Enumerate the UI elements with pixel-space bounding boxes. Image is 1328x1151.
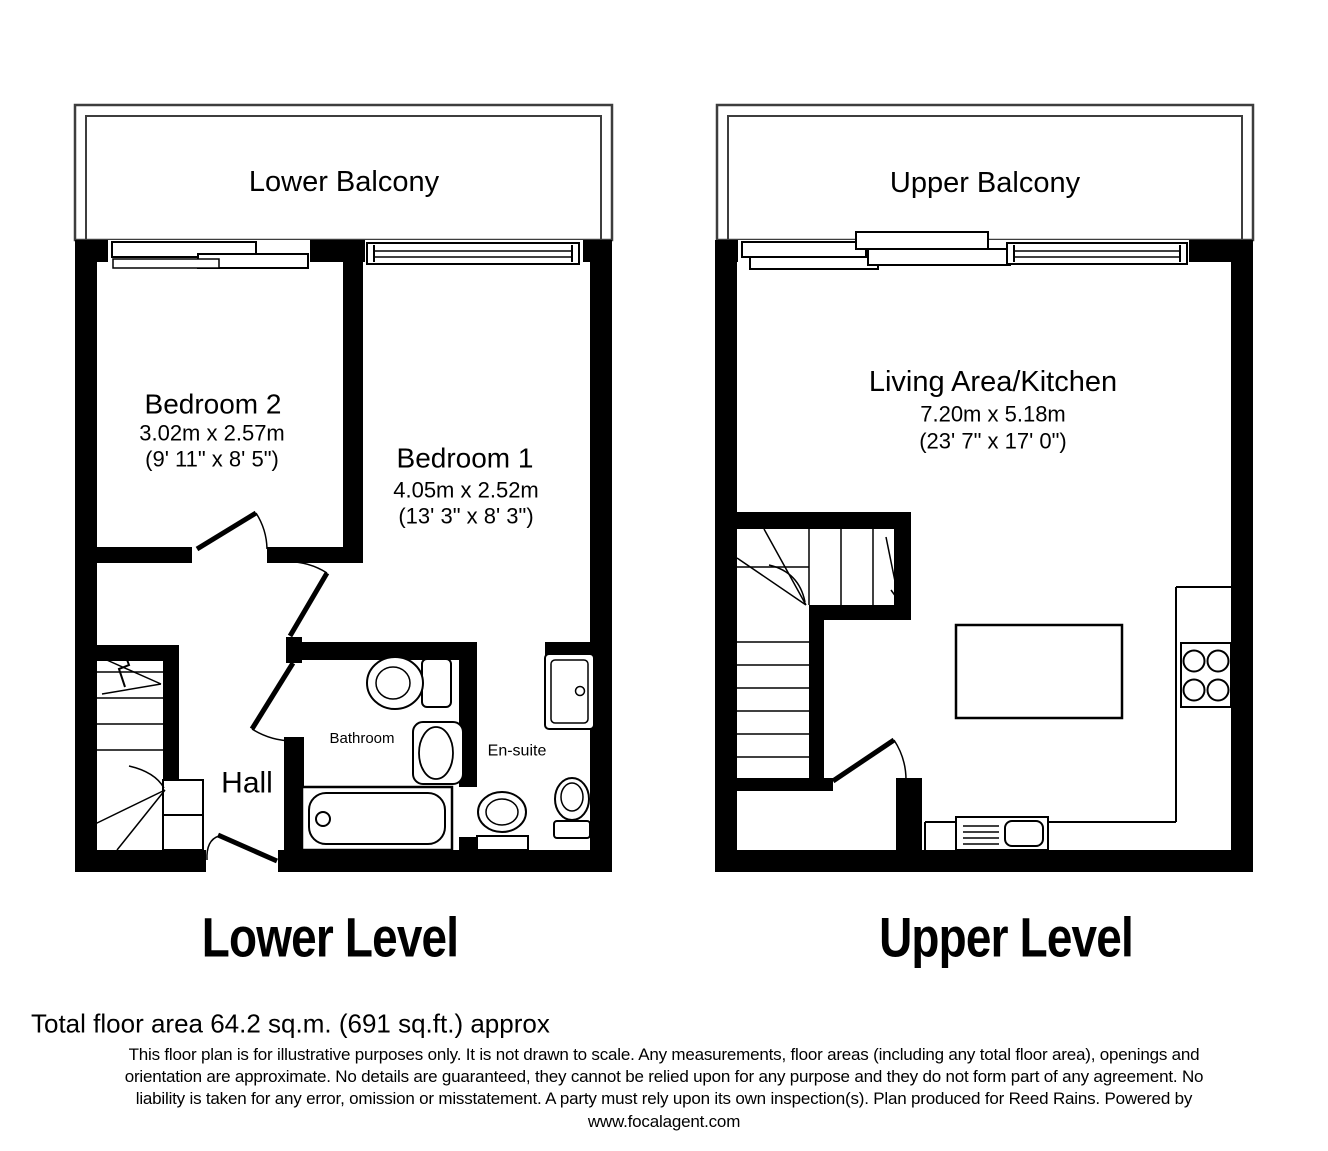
website-text: www.focalagent.com <box>588 1113 740 1131</box>
upper-walls <box>715 240 1253 872</box>
upper-level-title: Upper Level <box>879 909 1133 968</box>
upper-plan <box>715 105 1253 872</box>
island-table <box>956 625 1122 718</box>
ensuite-label: En-suite <box>488 744 547 761</box>
floorplan-page: Lower Balcony Bedroom 2 3.02m x 2.57m (9… <box>0 0 1328 1151</box>
bedroom2-dims-imperial: (9' 11" x 8' 5") <box>145 447 279 470</box>
floorplan-graphics <box>0 0 1328 1151</box>
upper-windows <box>742 232 1187 269</box>
bath-icon <box>302 787 452 850</box>
bedroom1-name: Bedroom 1 <box>397 443 534 472</box>
stairs-lower <box>95 649 203 850</box>
ensuite-toilet-icon <box>554 778 590 838</box>
bedroom1-dims-imperial: (13' 3" x 8' 3") <box>398 504 533 527</box>
ensuite-basin-icon <box>477 792 528 850</box>
basin-icon <box>413 722 463 784</box>
stair-door <box>833 740 906 781</box>
hall-label: Hall <box>221 767 273 799</box>
lower-level-title: Lower Level <box>202 909 458 968</box>
bedroom2-name: Bedroom 2 <box>145 389 282 418</box>
bathroom-fixtures <box>302 657 463 850</box>
toilet-icon <box>367 657 451 709</box>
disclaimer-line-1: This floor plan is for illustrative purp… <box>129 1046 1200 1064</box>
bedroom2-dims-metric: 3.02m x 2.57m <box>139 421 285 444</box>
living-area-dims-metric: 7.20m x 5.18m <box>920 402 1066 425</box>
bedroom1-window-icon <box>367 243 579 264</box>
bedroom1-door <box>281 562 327 636</box>
hob-icon <box>1181 643 1231 707</box>
shower-icon <box>545 654 594 729</box>
bedroom2-door <box>197 513 267 549</box>
bedroom1-dims-metric: 4.05m x 2.52m <box>393 478 539 501</box>
total-floor-area: Total floor area 64.2 sq.m. (691 sq.ft.)… <box>31 1009 550 1040</box>
kitchen-fixtures <box>925 587 1231 850</box>
disclaimer-line-2: orientation are approximate. No details … <box>125 1068 1204 1086</box>
bathroom-door <box>252 663 293 741</box>
upper-balcony-label: Upper Balcony <box>890 168 1080 198</box>
disclaimer-line-3: liability is taken for any error, omissi… <box>136 1090 1192 1108</box>
bathroom-label: Bathroom <box>329 731 394 747</box>
living-area-name: Living Area/Kitchen <box>869 367 1117 397</box>
living-window-icon <box>1007 243 1187 264</box>
balcony-sliding-door-icon <box>856 232 1010 265</box>
living-area-dims-imperial: (23' 7" x 17' 0") <box>919 429 1067 452</box>
lower-balcony-label: Lower Balcony <box>249 167 439 197</box>
sink-icon <box>956 817 1048 850</box>
